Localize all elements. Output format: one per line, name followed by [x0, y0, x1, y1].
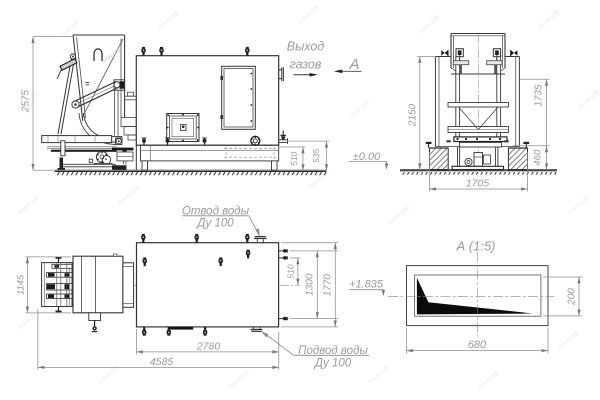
- svg-text:А: А: [348, 56, 359, 73]
- svg-text:460: 460: [533, 149, 544, 166]
- svg-text:Ду 100: Ду 100: [195, 218, 234, 230]
- svg-text:510: 510: [286, 264, 296, 278]
- svg-text:А (1:5): А (1:5): [455, 239, 495, 254]
- svg-text:Ду 100: Ду 100: [313, 357, 352, 369]
- svg-text:510: 510: [289, 151, 299, 165]
- svg-text:1735: 1735: [534, 84, 545, 107]
- svg-text:Выход: Выход: [287, 40, 325, 54]
- svg-text:1770: 1770: [323, 274, 334, 297]
- svg-text:2575: 2575: [21, 89, 32, 113]
- svg-text:200: 200: [566, 288, 577, 306]
- svg-text:+1.835: +1.835: [349, 278, 384, 290]
- svg-text:680: 680: [468, 339, 487, 351]
- svg-text:1300: 1300: [305, 273, 316, 296]
- svg-text:2780: 2780: [196, 340, 221, 352]
- svg-text:газов: газов: [290, 58, 322, 72]
- svg-text:1145: 1145: [15, 274, 26, 295]
- svg-text:1705: 1705: [466, 178, 490, 190]
- svg-text:4585: 4585: [150, 356, 174, 368]
- svg-text:2150: 2150: [407, 103, 418, 127]
- svg-text:535: 535: [311, 148, 321, 162]
